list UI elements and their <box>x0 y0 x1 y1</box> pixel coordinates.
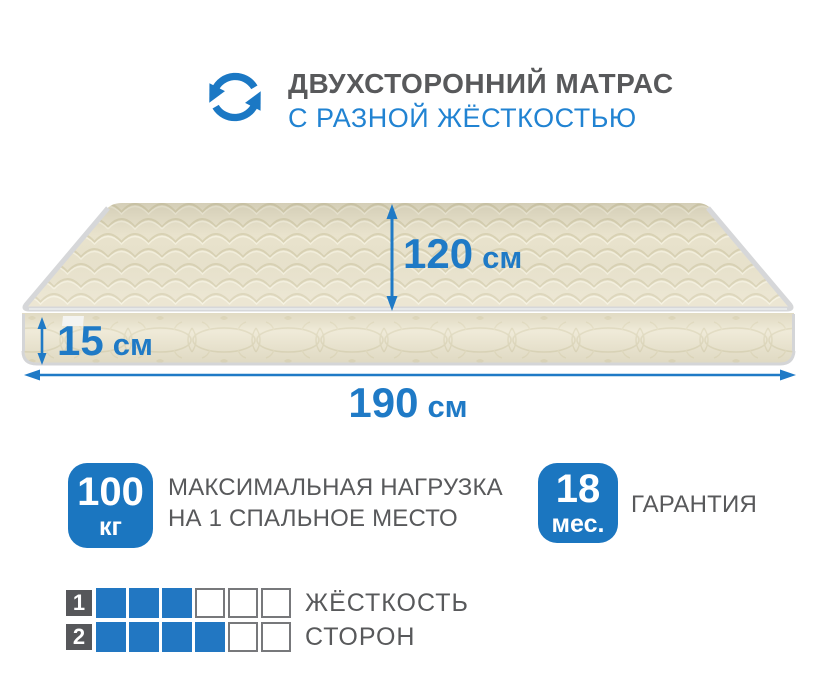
firmness-filled-square <box>129 622 159 652</box>
warranty-badge: 18 мес. <box>538 463 618 543</box>
firmness-empty-square <box>228 588 258 618</box>
firmness-row-side-1: 1 ЖЁСТКОСТЬ <box>66 588 469 618</box>
firmness-filled-square <box>162 622 192 652</box>
max-load-unit: кг <box>99 515 122 540</box>
mattress-infographic: ДВУХСТОРОННИЙ МАТРАС С РАЗНОЙ ЖЁСТКОСТЬЮ <box>0 0 816 700</box>
firmness-empty-square <box>195 588 225 618</box>
firmness-empty-square <box>261 622 291 652</box>
firmness-scale-side-2 <box>96 622 291 652</box>
sides-label: СТОРОН <box>305 623 415 652</box>
firmness-filled-square <box>96 588 126 618</box>
length-unit: см <box>427 391 467 422</box>
side-1-number-badge: 1 <box>66 590 92 616</box>
firmness-filled-square <box>195 622 225 652</box>
firmness-filled-square <box>129 588 159 618</box>
warranty-description: ГАРАНТИЯ <box>631 489 757 520</box>
flip-arrows-icon <box>204 66 266 128</box>
header: ДВУХСТОРОННИЙ МАТРАС С РАЗНОЙ ЖЁСТКОСТЬЮ <box>288 68 674 133</box>
warranty-unit: мес. <box>552 512 605 537</box>
warranty-value: 18 <box>556 469 601 509</box>
max-load-value: 100 <box>77 472 144 512</box>
depth-value: 120 <box>403 233 473 275</box>
max-load-description-line2: НА 1 СПАЛЬНОЕ МЕСТО <box>168 503 503 534</box>
side-2-number-badge: 2 <box>66 624 92 650</box>
dimension-thickness-label: 15 см <box>57 320 153 362</box>
depth-unit: см <box>482 242 522 273</box>
thickness-value: 15 <box>57 320 104 362</box>
max-load-description: МАКСИМАЛЬНАЯ НАГРУЗКА НА 1 СПАЛЬНОЕ МЕСТ… <box>168 472 503 534</box>
thickness-unit: см <box>113 329 153 360</box>
max-load-badge: 100 кг <box>68 463 153 548</box>
firmness-filled-square <box>162 588 192 618</box>
firmness-empty-square <box>228 622 258 652</box>
firmness-label: ЖЁСТКОСТЬ <box>305 589 469 618</box>
page-title: ДВУХСТОРОННИЙ МАТРАС <box>288 68 674 100</box>
firmness-row-side-2: 2 СТОРОН <box>66 622 415 652</box>
length-value: 190 <box>348 382 418 424</box>
dimension-depth-label: 120 см <box>403 233 522 275</box>
firmness-empty-square <box>261 588 291 618</box>
firmness-scale-side-1 <box>96 588 291 618</box>
page-subtitle: С РАЗНОЙ ЖЁСТКОСТЬЮ <box>288 103 674 133</box>
firmness-filled-square <box>96 622 126 652</box>
dimension-length-label: 190 см <box>0 382 816 424</box>
max-load-description-line1: МАКСИМАЛЬНАЯ НАГРУЗКА <box>168 472 503 503</box>
